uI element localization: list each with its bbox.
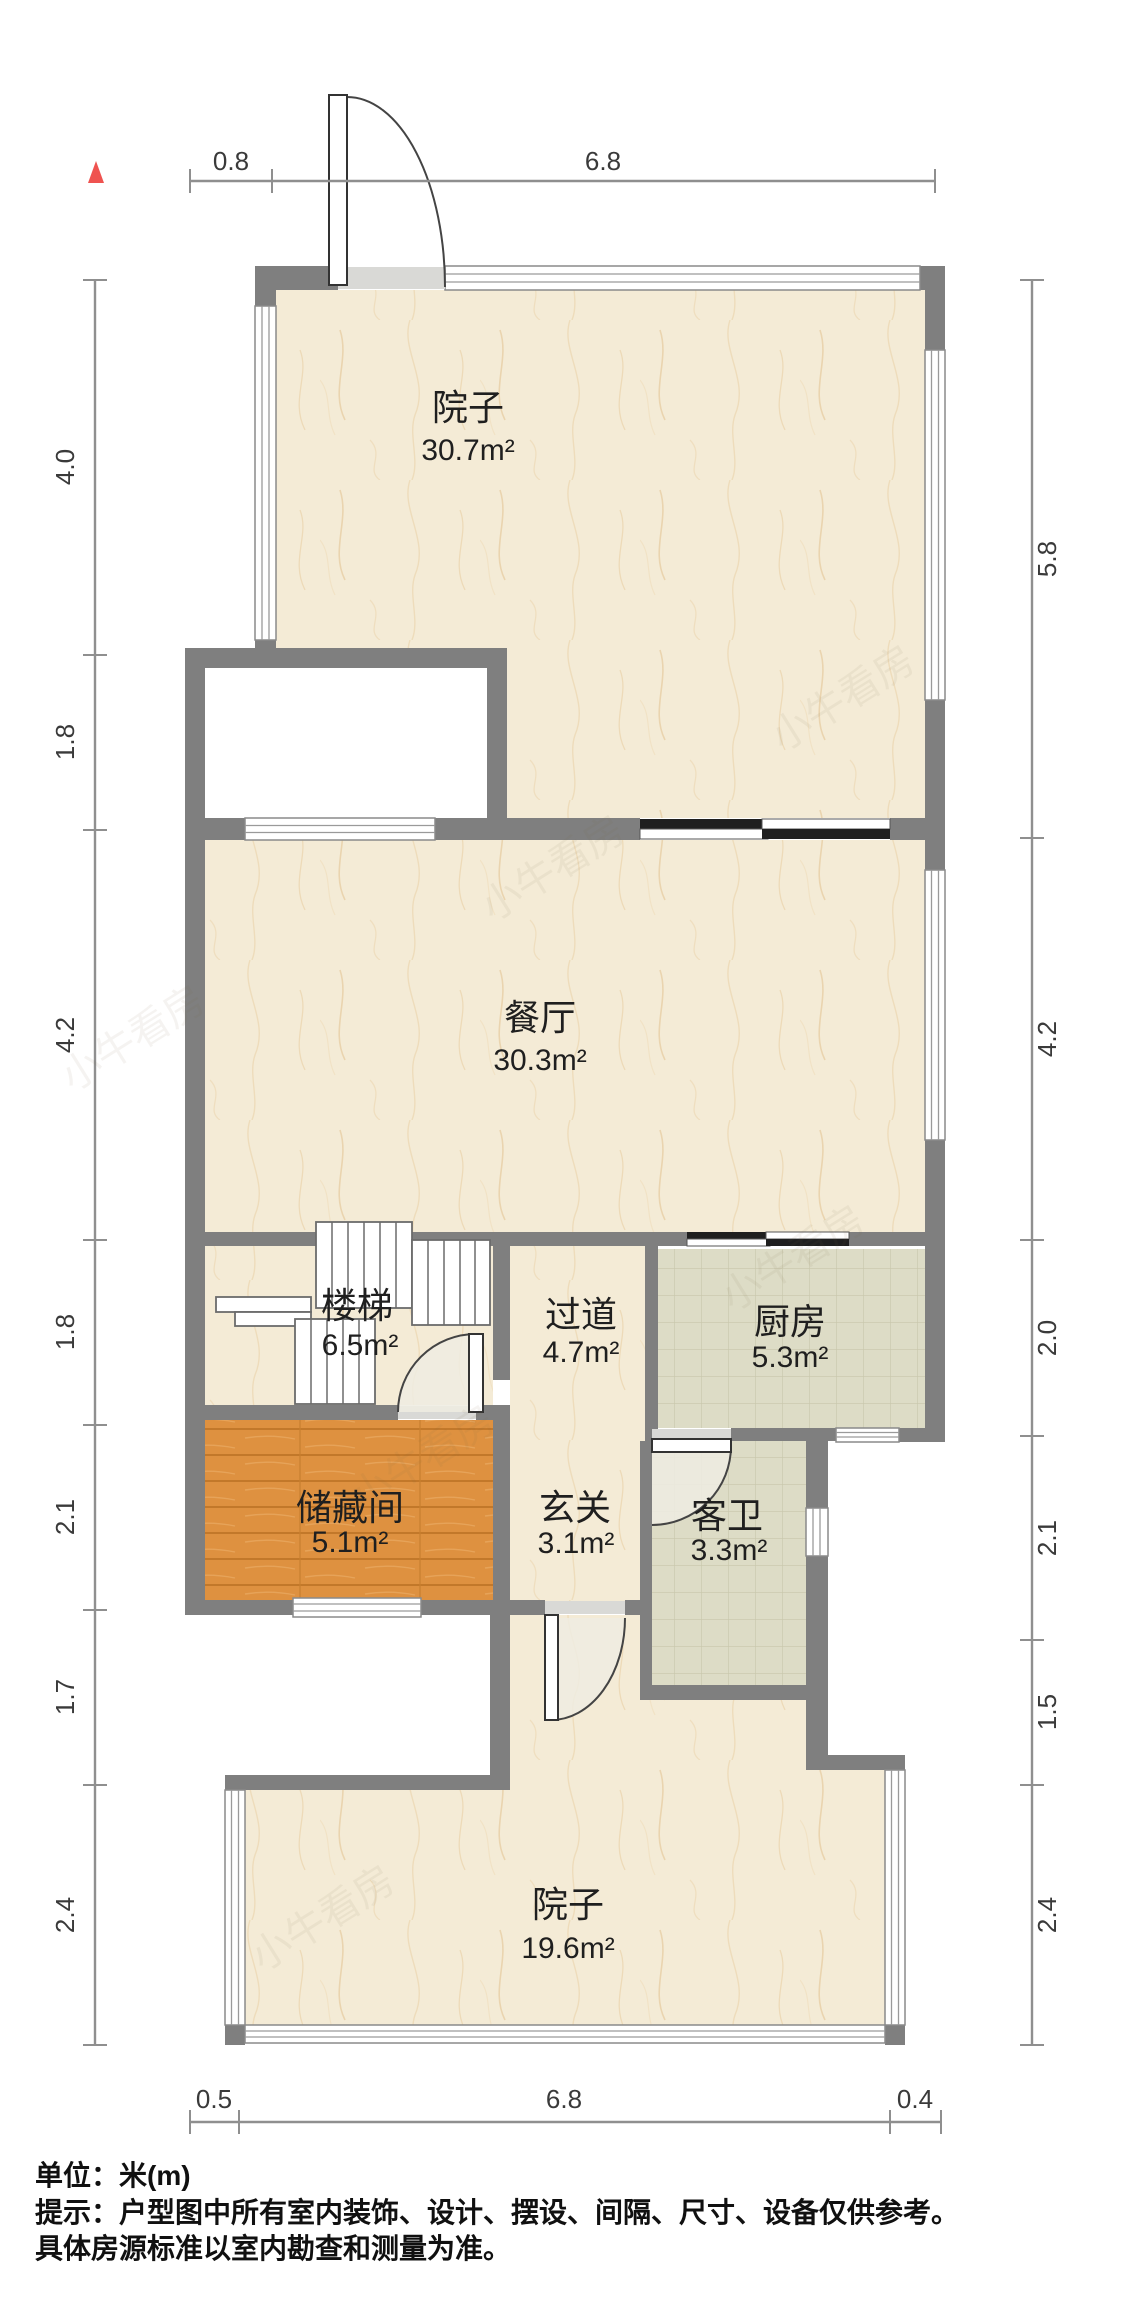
area-dining: 30.3m² [493, 1044, 586, 1077]
area-hallway: 4.7m² [543, 1336, 620, 1369]
dim-left-1: 1.8 [50, 724, 80, 760]
window-yard-bottom-south [245, 2025, 885, 2043]
window-bath-east [806, 1508, 828, 1556]
dim-top-1: 6.8 [585, 146, 621, 176]
floor-yard-top [276, 290, 925, 818]
dim-top-0: 0.8 [213, 146, 249, 176]
area-kitchen: 5.3m² [752, 1341, 829, 1374]
dim-right-0: 5.8 [1032, 541, 1062, 577]
door-yard-top [329, 95, 445, 289]
dim-right-5: 2.4 [1032, 1897, 1062, 1933]
footer-tip-line-1: 提示：户型图中所有室内装饰、设计、摆设、间隔、尺寸、设备仅供参考。 [35, 2196, 959, 2228]
dimension-right: 5.8 4.2 2.0 2.1 1.5 2.4 [1020, 280, 1062, 2045]
dim-bottom-2: 0.4 [897, 2084, 933, 2114]
label-hallway: 过道 [545, 1294, 617, 1335]
floorplan-canvas: 院子 30.7m² 餐厅 30.3m² 楼梯 6.5m² 过道 4.7m² 厨房… [0, 0, 1125, 2299]
dimension-bottom: 0.5 6.8 0.4 [190, 2084, 941, 2134]
area-entry: 3.1m² [538, 1527, 615, 1560]
label-guest-bath: 客卫 [691, 1495, 763, 1536]
dim-left-0: 4.0 [50, 449, 80, 485]
dim-bottom-1: 6.8 [546, 2084, 582, 2114]
label-yard-top: 院子 [432, 387, 504, 428]
north-arrow-icon [88, 161, 104, 183]
dim-right-2: 2.0 [1032, 1320, 1062, 1356]
dim-bottom-0: 0.5 [196, 2084, 232, 2114]
window-yard-bottom-east [885, 1770, 905, 2025]
window-yard-top-east [925, 350, 945, 700]
dimension-top: 0.8 6.8 [190, 146, 935, 193]
window-yard-bottom-west [225, 1790, 245, 2025]
footer-unit-line: 单位：米(m) [35, 2159, 191, 2191]
label-entry: 玄关 [539, 1487, 611, 1528]
area-guest-bath: 3.3m² [691, 1534, 768, 1567]
dim-right-3: 2.1 [1032, 1520, 1062, 1556]
dim-left-4: 2.1 [50, 1499, 80, 1535]
dim-left-6: 2.4 [50, 1897, 80, 1933]
label-kitchen: 厨房 [754, 1301, 826, 1342]
dim-right-4: 1.5 [1032, 1694, 1062, 1730]
window-yard-top-west [255, 306, 276, 640]
dim-left-2: 4.2 [50, 1017, 80, 1053]
sliding-door-yard-dining [640, 819, 890, 839]
footer-notes: 单位：米(m) 提示：户型图中所有室内装饰、设计、摆设、间隔、尺寸、设备仅供参考… [35, 2159, 959, 2264]
area-stairs: 6.5m² [322, 1329, 399, 1362]
area-yard-bottom: 19.6m² [521, 1932, 614, 1965]
window-storage-south [293, 1598, 421, 1617]
dim-left-5: 1.7 [50, 1679, 80, 1715]
floorplan-page: 院子 30.7m² 餐厅 30.3m² 楼梯 6.5m² 过道 4.7m² 厨房… [0, 0, 1125, 2299]
area-yard-top: 30.7m² [421, 434, 514, 467]
window-dining-east [925, 870, 945, 1140]
footer-tip-line-2: 具体房源标准以室内勘查和测量为准。 [35, 2232, 511, 2264]
window-yard-top-north [445, 266, 920, 290]
window-kitchen-south [836, 1428, 899, 1442]
area-storage: 5.1m² [312, 1526, 389, 1559]
dim-right-1: 4.2 [1032, 1021, 1062, 1057]
label-stairs: 楼梯 [321, 1285, 393, 1326]
dimension-left: 4.0 1.8 4.2 1.8 2.1 1.7 2.4 [50, 280, 107, 2045]
window-dining-north [245, 818, 435, 840]
dim-left-3: 1.8 [50, 1314, 80, 1350]
label-dining: 餐厅 [504, 997, 576, 1038]
label-yard-bottom: 院子 [532, 1884, 604, 1925]
